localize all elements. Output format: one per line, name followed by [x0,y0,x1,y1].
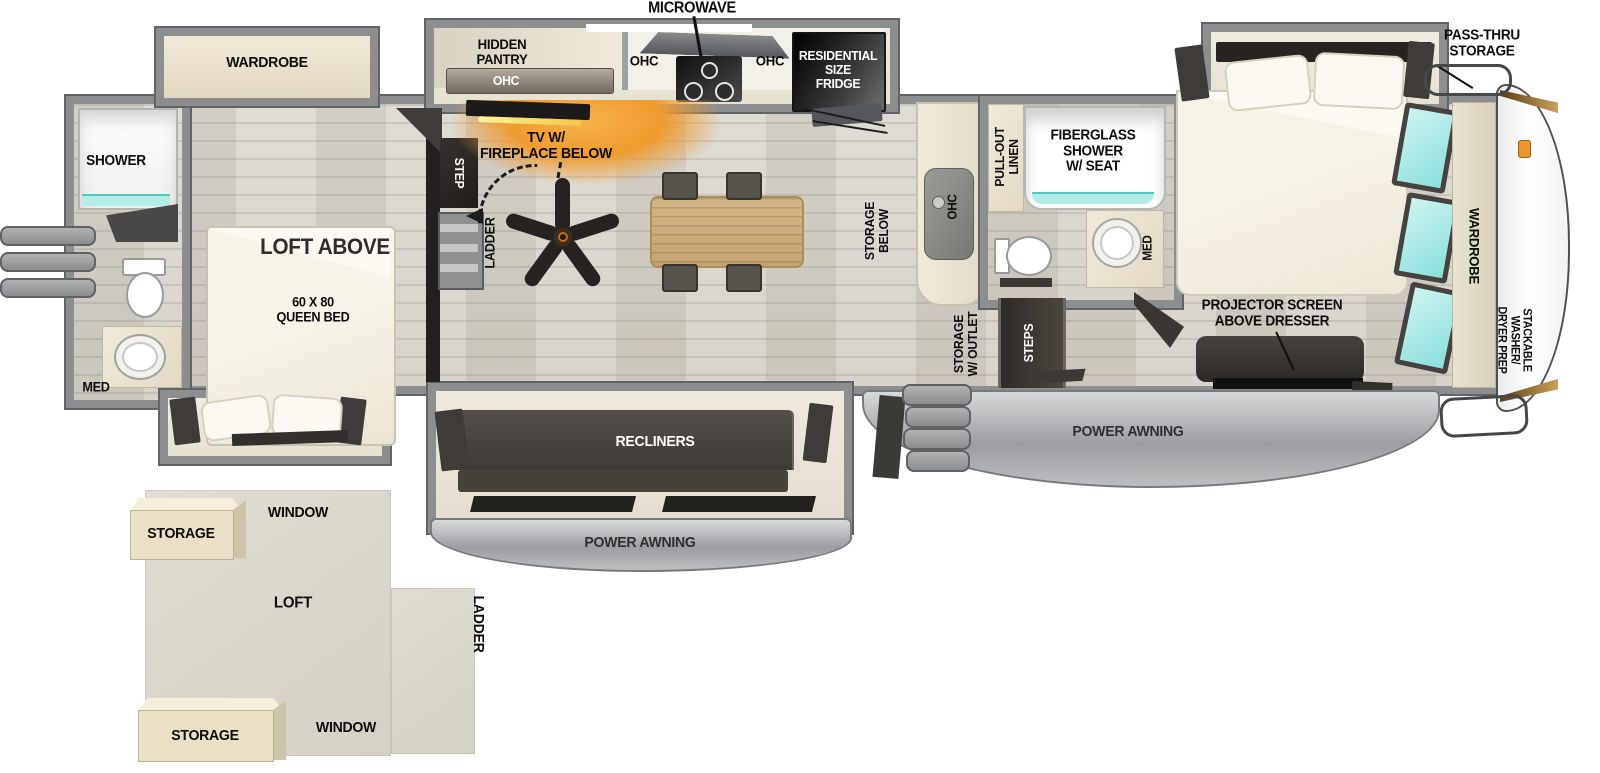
loft-label: LOFT [274,594,312,611]
loft-window-bottom-label: WINDOW [316,720,376,736]
recliner-mat-right [662,496,816,512]
exterior-step-3 [903,428,971,450]
dining-chair [662,172,698,200]
exterior-step-2 [905,406,971,428]
loft-window-top-label: WINDOW [268,505,328,521]
rear-sink-icon [114,334,166,380]
fan-hub [554,228,572,246]
recliner-mat-left [470,496,636,512]
rear-ladder-rung2 [0,252,96,272]
power-awning-main-label: POWER AWNING [1072,424,1183,440]
storage-outlet-label: STORAGE W/ OUTLET [952,312,980,377]
dining-chair [662,264,698,292]
exterior-step-1 [902,384,972,406]
mid-bath-mat [1000,278,1052,287]
power-awning-recliner-label: POWER AWNING [584,535,695,551]
pull-out-linen-label: PULL-OUT LINEN [993,127,1021,187]
rear-wardrobe-label: WARDROBE [226,55,308,71]
tv-fireplace-label: TV W/ FIREPLACE BELOW [480,130,612,162]
loft-above-label: LOFT ABOVE [260,235,390,259]
microwave-label: MICROWAVE [648,1,736,18]
loft-storage-top-label: STORAGE [147,526,215,542]
recliners-label: RECLINERS [616,434,695,450]
recliner-sofa-seat [458,470,788,492]
loft-ladder-label: LADDER [470,595,486,652]
queen-bed-label: 60 X 80 QUEEN BED [277,295,350,324]
dining-table [650,196,804,268]
interior-ladder-label: LADDER [484,217,499,268]
entry-steps-label: STEPS [1022,324,1036,363]
kitchen-sink-icon [932,196,945,209]
rear-shower-label: SHOWER [86,154,146,170]
ohc-right-label: OHC [756,53,784,68]
interior-ladder-rung1 [440,224,478,232]
dining-chair [726,172,762,200]
pass-thru-hatch [1424,64,1512,96]
pantry-ohc-cabinet [446,68,614,94]
interior-ladder-rung2 [440,244,478,252]
loft-floor-extension [391,588,475,754]
rear-ladder-rung1 [0,226,96,246]
stove-burner-top [701,62,718,79]
exterior-step-4 [906,450,970,472]
stove-burner-right [715,82,734,101]
sink-ohc-label: OHC [946,194,960,219]
floorplan-canvas: WARDROBE SHOWER MED LOFT ABOVE 60 X 80 Q… [0,0,1600,773]
fridge-label: RESIDENTIAL SIZE FRIDGE [799,49,877,91]
stove-burner-left [684,82,703,101]
front-wardrobe-label: WARDROBE [1466,208,1481,284]
storage-below-label: STORAGE BELOW [863,202,891,260]
rear-med-label: MED [82,381,109,396]
interior-ladder-rung3 [440,264,478,272]
entry-mat [1036,369,1085,384]
front-bed-pillow-left [1224,54,1313,113]
mid-toilet-bowl [1006,236,1052,276]
landing-gear-hatch [1439,394,1529,439]
washer-dryer-label: STACKABLE WASHER/ DRYER PREP [1495,300,1532,381]
dining-chair [726,264,762,292]
fan-blade [555,178,570,232]
hidden-pantry-label: HIDDEN PANTRY [477,37,528,67]
tv-swing-arrow [466,208,483,224]
front-bed-pillow-right [1313,52,1406,111]
rear-ladder-rung3 [0,278,96,298]
rear-shower-floor-strip [82,194,170,206]
cap-latch-icon [1518,140,1531,158]
fiberglass-shower-label: FIBERGLASS SHOWER W/ SEAT [1050,129,1135,176]
rear-slide-window-left [169,397,200,446]
pass-thru-label: PASS-THRU STORAGE [1444,28,1520,59]
mid-shower-floor-strip [1032,192,1154,204]
rear-toilet-bowl [126,272,164,318]
pantry-ohc-label: OHC [493,74,519,88]
kitchen-top-window [586,24,752,32]
dresser-base-bar [1213,378,1363,389]
ohc-left-label: OHC [630,53,658,68]
mid-sink-icon [1092,218,1142,268]
loft-storage-bottom-label: STORAGE [171,728,239,744]
mid-med-label: MED [1141,235,1155,260]
projector-label: PROJECTOR SCREEN ABOVE DRESSER [1202,298,1343,329]
